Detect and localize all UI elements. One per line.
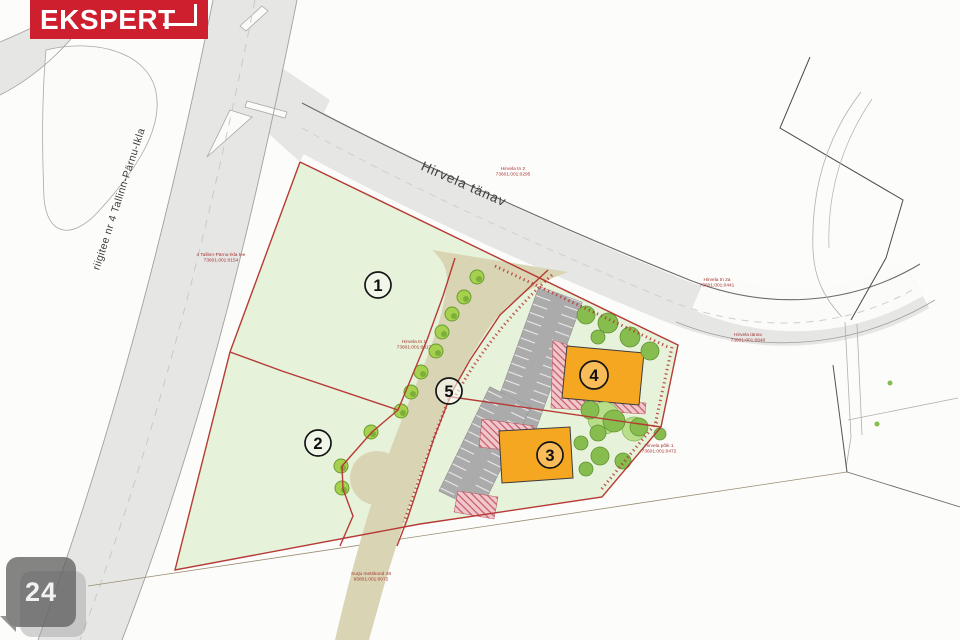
svg-text:Hirvela tn 1: Hirvela tn 1 [402, 339, 427, 345]
svg-text:73601:001:0441: 73601:001:0441 [700, 283, 735, 289]
svg-text:Surju metskond 48: Surju metskond 48 [351, 571, 391, 577]
plot-marker-3: 3 [537, 442, 563, 468]
svg-text:95801:001:0072: 95801:001:0072 [354, 577, 389, 583]
svg-text:73601:001:0317: 73601:001:0317 [397, 345, 432, 351]
svg-text:Hirvela tn 2: Hirvela tn 2 [501, 166, 526, 172]
plot-marker-4: 4 [580, 361, 608, 389]
ekspert-logo: EKSPERT [30, 0, 208, 39]
photo-count-badge[interactable]: 24 [6, 557, 76, 627]
photo-count-value: 24 [25, 577, 57, 608]
svg-text:1: 1 [373, 277, 382, 295]
svg-text:Hirvela põik 1: Hirvela põik 1 [644, 443, 673, 449]
site-plan-map: 1 2 3 4 5 Hirvela tänav riigitee nr 4 Ta… [0, 0, 960, 640]
svg-text:2: 2 [313, 435, 322, 453]
svg-text:Hirvela tn 2a: Hirvela tn 2a [704, 277, 731, 283]
svg-text:73601:001:0472: 73601:001:0472 [642, 449, 677, 455]
badge-fold-icon [0, 616, 16, 632]
svg-text:73601:001:0640: 73601:001:0640 [731, 338, 766, 344]
plot-marker-1: 1 [365, 272, 391, 298]
logo-corner-bracket-icon [163, 4, 197, 26]
svg-text:3: 3 [545, 447, 554, 465]
plot-marker-2: 2 [305, 430, 331, 456]
svg-text:73601:001:0154: 73601:001:0154 [204, 258, 239, 264]
svg-text:73601:001:0295: 73601:001:0295 [496, 172, 531, 178]
svg-text:4: 4 [589, 367, 599, 385]
site-plan-page: 1 2 3 4 5 Hirvela tänav riigitee nr 4 Ta… [0, 0, 960, 640]
plot-marker-5: 5 [436, 378, 462, 404]
ekspert-logo-text: EKSPERT [40, 0, 176, 39]
svg-text:Hirvela tänav: Hirvela tänav [734, 332, 763, 338]
turning-circle [350, 451, 404, 505]
svg-text:5: 5 [444, 383, 453, 401]
svg-text:4 Tallinn-Pärnu-Ikla tee: 4 Tallinn-Pärnu-Ikla tee [197, 252, 246, 258]
